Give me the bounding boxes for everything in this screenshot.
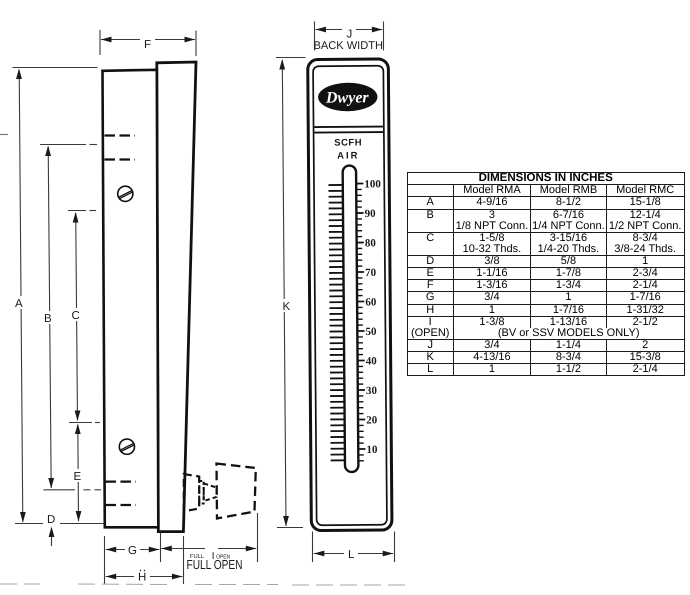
- svg-text:L: L: [348, 549, 355, 561]
- svg-text:70: 70: [365, 267, 377, 279]
- svg-text:E: E: [74, 471, 82, 483]
- svg-text:AIR: AIR: [337, 150, 359, 161]
- svg-text:40: 40: [366, 355, 378, 367]
- svg-text:100: 100: [364, 178, 381, 190]
- svg-text:60: 60: [365, 296, 377, 308]
- svg-text:80: 80: [365, 237, 377, 249]
- svg-text:A: A: [15, 298, 23, 310]
- svg-text:30: 30: [366, 385, 378, 397]
- svg-text:SCFH: SCFH: [334, 137, 362, 148]
- svg-text:Dwyer: Dwyer: [325, 89, 370, 106]
- svg-text:F: F: [144, 39, 151, 51]
- svg-text:D: D: [47, 514, 55, 526]
- svg-text:B: B: [44, 313, 52, 325]
- svg-text:90: 90: [365, 208, 377, 220]
- svg-text:J: J: [347, 29, 353, 41]
- svg-text:C: C: [72, 310, 80, 322]
- svg-text:G: G: [128, 545, 137, 557]
- svg-text:K: K: [283, 301, 291, 313]
- svg-text:50: 50: [365, 326, 377, 338]
- svg-text:BACK WIDTH: BACK WIDTH: [314, 40, 384, 52]
- svg-text:10: 10: [366, 444, 378, 456]
- svg-text:20: 20: [366, 414, 378, 426]
- svg-text:FULL OPEN: FULL OPEN: [187, 557, 243, 572]
- svg-text:H: H: [138, 572, 146, 584]
